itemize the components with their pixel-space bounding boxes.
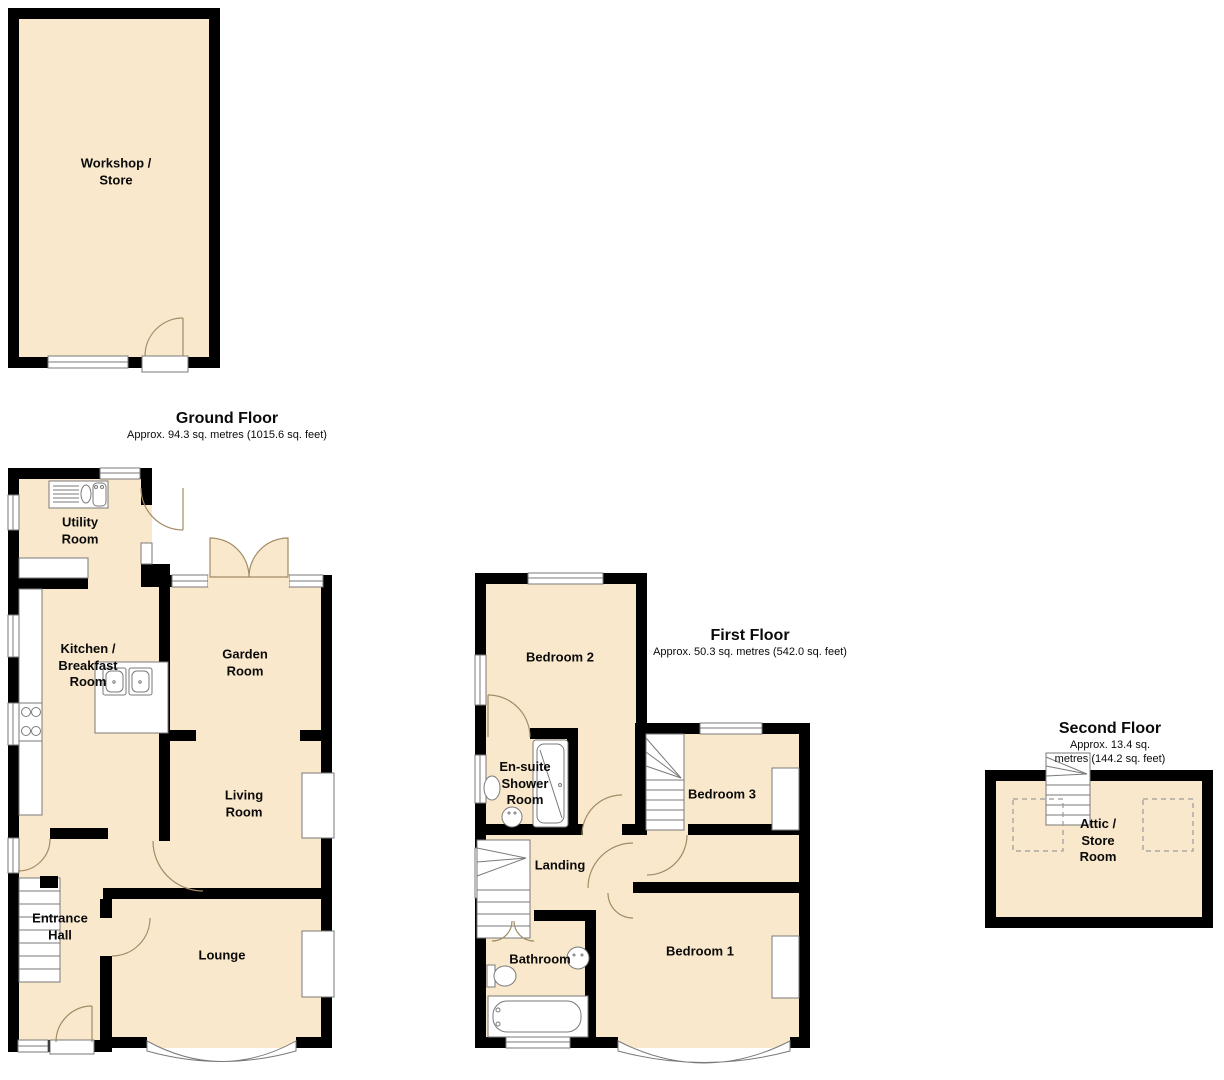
ground-floor-caption: Ground Floor Approx. 94.3 sq. metres (10… <box>127 410 327 442</box>
room-label-kitchen-breakfast-room: Kitchen / Breakfast Room <box>58 641 117 691</box>
room-label-living-room: Living Room <box>225 787 263 820</box>
room-label-bedroom-2: Bedroom 2 <box>526 650 594 667</box>
room-label-garden-room: Garden Room <box>222 646 268 679</box>
room-label-ensuite-shower-room: En-suite Shower Room <box>499 759 550 809</box>
room-label-bedroom-1: Bedroom 1 <box>666 944 734 961</box>
second-floor-caption: Second Floor Approx. 13.4 sq. metres (14… <box>1053 720 1167 766</box>
room-label-workshop-store: Workshop / Store <box>81 155 152 188</box>
floorplan-canvas <box>0 0 1224 1080</box>
second-floor-title: Second Floor <box>1053 720 1167 738</box>
room-label-utility-room: Utility Room <box>62 514 99 547</box>
first-floor-area: Approx. 50.3 sq. metres (542.0 sq. feet) <box>653 645 847 659</box>
room-label-bedroom-3: Bedroom 3 <box>688 787 756 804</box>
second-floor-area: Approx. 13.4 sq. metres (144.2 sq. feet) <box>1053 738 1167 767</box>
room-label-lounge: Lounge <box>199 948 246 965</box>
room-label-landing: Landing <box>535 858 586 875</box>
first-floor-caption: First Floor Approx. 50.3 sq. metres (542… <box>653 627 847 659</box>
ground-floor-plan <box>8 468 334 1062</box>
room-label-bathroom: Bathroom <box>509 952 570 969</box>
workshop-plan <box>8 8 220 372</box>
ground-floor-title: Ground Floor <box>127 410 327 428</box>
room-label-attic-store-room: Attic / Store Room <box>1080 816 1117 866</box>
floorplan-page: Workshop / Store Utility Room Kitchen / … <box>0 0 1224 1080</box>
first-floor-title: First Floor <box>653 627 847 645</box>
ground-floor-area: Approx. 94.3 sq. metres (1015.6 sq. feet… <box>127 428 327 442</box>
room-label-entrance-hall: Entrance Hall <box>32 910 88 943</box>
